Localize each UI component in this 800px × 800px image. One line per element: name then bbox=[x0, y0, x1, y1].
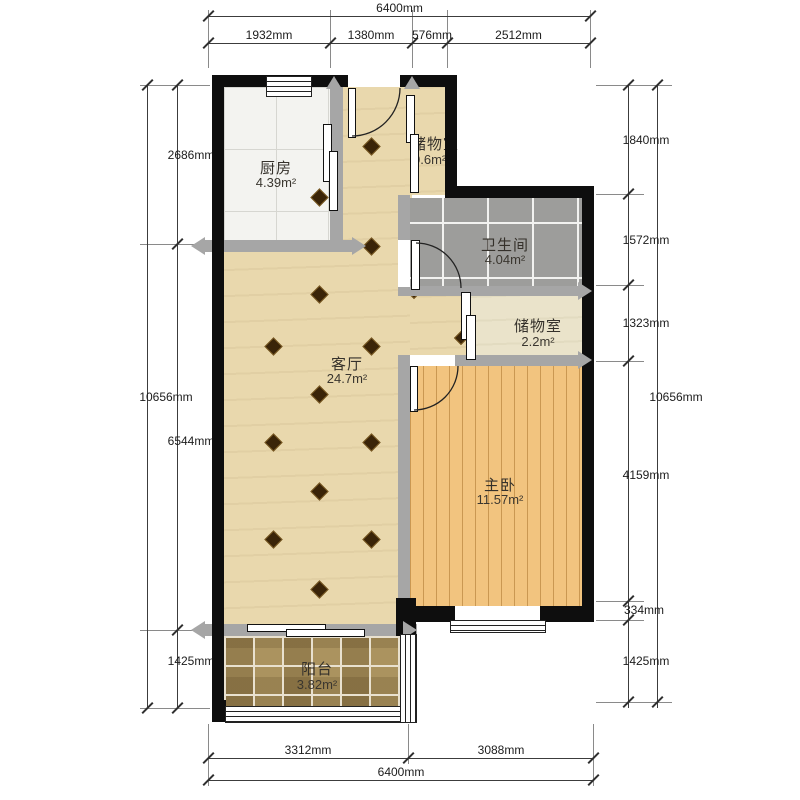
entrance-door-leaf bbox=[348, 88, 356, 138]
storage-top-sliding-door bbox=[410, 134, 419, 193]
storage-mid-label: 储物室 bbox=[493, 315, 583, 336]
dim-segment: 4159mm bbox=[604, 468, 688, 482]
bedroom-area: 11.57m² bbox=[450, 492, 550, 507]
dim-line bbox=[208, 758, 594, 759]
storage-top-right-wall bbox=[445, 75, 457, 198]
dim-segment: 334mm bbox=[607, 603, 681, 617]
dim-segment: 1425mm bbox=[604, 654, 688, 668]
dim-segment: 3088mm bbox=[408, 743, 594, 757]
bathroom-bottom-wall bbox=[410, 286, 582, 296]
dim-line bbox=[208, 780, 594, 781]
dim-segment: 1323mm bbox=[604, 316, 688, 330]
dim-segment: 2512mm bbox=[447, 28, 590, 42]
dim-segment: 1380mm bbox=[330, 28, 412, 42]
right-wall bbox=[582, 186, 594, 622]
dim-total-top: 6400mm bbox=[208, 1, 591, 15]
wall-cap-arrow-icon bbox=[578, 282, 592, 300]
bedroom-left-wall bbox=[398, 355, 410, 606]
storage-mid-area: 2.2m² bbox=[493, 334, 583, 349]
balcony-label: 阳台 bbox=[267, 658, 367, 679]
kitchen-area: 4.39m² bbox=[224, 175, 328, 190]
dim-segment: 1840mm bbox=[604, 133, 688, 147]
bedroom-door-opening bbox=[410, 355, 455, 366]
balcony-front-window bbox=[225, 706, 401, 723]
kitchen-bottom-wall bbox=[205, 240, 353, 252]
balcony-side-window bbox=[400, 634, 417, 723]
storage-mid-sliding-door bbox=[466, 315, 476, 360]
storage-top-label: 储物室 bbox=[411, 133, 469, 154]
wall-cap-arrow-icon bbox=[578, 351, 592, 369]
wall-cap-arrow-icon bbox=[191, 237, 205, 255]
bathroom-door-leaf bbox=[411, 240, 420, 290]
living-room-area: 24.7m² bbox=[297, 371, 397, 386]
balcony-sliding-door bbox=[286, 629, 365, 637]
dim-total-left: 10656mm bbox=[120, 390, 212, 404]
kitchen-sliding-door bbox=[329, 151, 338, 211]
bathroom-top-wall bbox=[445, 186, 594, 198]
wall-cap-arrow-icon bbox=[326, 76, 342, 89]
dim-segment: 3312mm bbox=[208, 743, 408, 757]
bathroom-door-opening bbox=[398, 240, 410, 287]
dim-segment: 1932mm bbox=[208, 28, 330, 42]
dim-total-right: 10656mm bbox=[630, 390, 722, 404]
wall-cap-arrow-icon bbox=[352, 237, 366, 255]
wall-cap-arrow-icon bbox=[191, 621, 205, 639]
dim-total-bottom: 6400mm bbox=[208, 765, 594, 779]
balcony-area: 3.82m² bbox=[267, 677, 367, 692]
dim-line bbox=[208, 16, 591, 17]
dim-segment: 1572mm bbox=[604, 233, 688, 247]
bedroom-door-leaf bbox=[410, 366, 418, 412]
kitchen-vent-shaft bbox=[266, 76, 312, 97]
bedroom-window-sill bbox=[450, 620, 546, 633]
entrance-opening bbox=[348, 75, 400, 87]
wall-cap-arrow-icon bbox=[404, 76, 420, 89]
balcony-bottom-stub bbox=[212, 700, 226, 722]
left-wall bbox=[212, 75, 224, 722]
dim-line bbox=[208, 43, 591, 44]
floor-plan-canvas: 厨房 4.39m² 储物室 0.6m² 卫生间 4.04m² 储物室 2.2m²… bbox=[0, 0, 800, 800]
bathroom-area: 4.04m² bbox=[460, 252, 550, 267]
